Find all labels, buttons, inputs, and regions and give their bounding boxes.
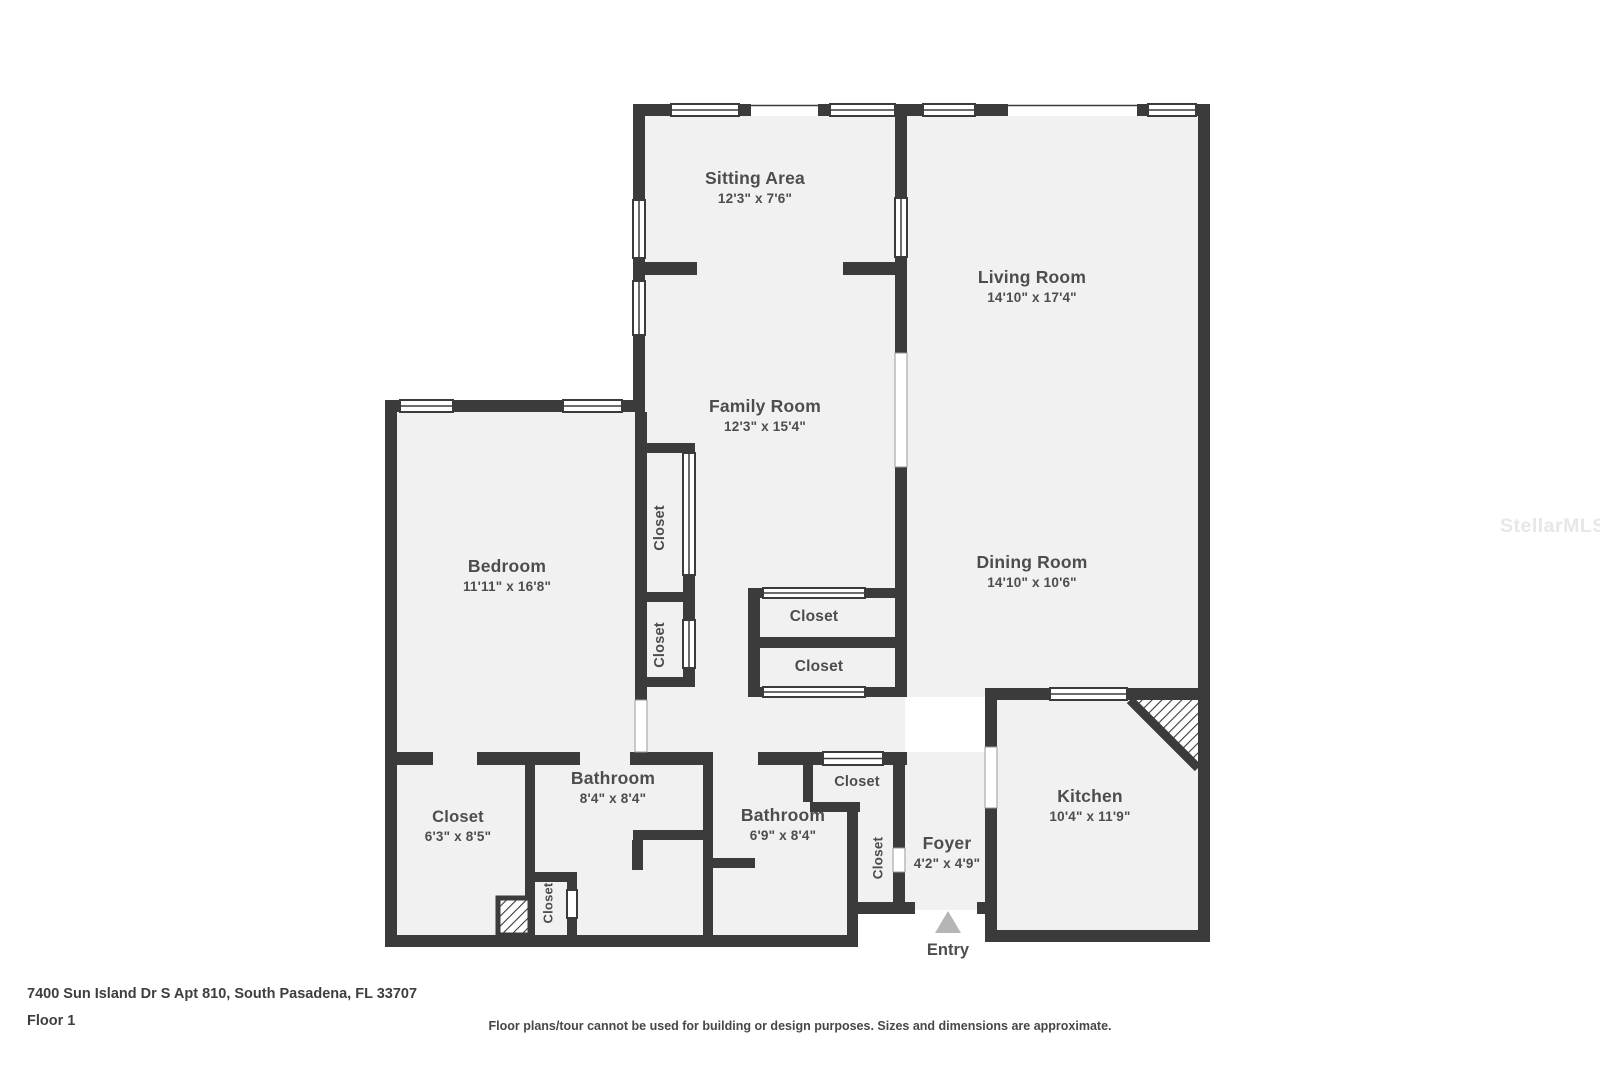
room-label-family-room: Family Room 12'3" x 15'4" xyxy=(709,396,821,434)
stellar-mls-watermark: StellarMLS xyxy=(1500,515,1600,538)
room-dims: 4'2" x 4'9" xyxy=(914,856,980,871)
wall xyxy=(847,902,858,947)
wall xyxy=(758,752,823,765)
room-dims: 11'11" x 16'8" xyxy=(463,579,551,594)
room-dims: 6'9" x 8'4" xyxy=(741,828,825,843)
wall xyxy=(985,930,1210,942)
wall xyxy=(748,588,763,598)
wall xyxy=(683,443,695,453)
room-name: Bathroom xyxy=(741,805,825,826)
room-label-bedroom: Bedroom 11'11" x 16'8" xyxy=(463,556,551,594)
entry-label: Entry xyxy=(927,941,969,960)
room-label-kitchen: Kitchen 10'4" x 11'9" xyxy=(1049,786,1130,824)
floor-number-label: Floor 1 xyxy=(27,1013,75,1029)
property-address: 7400 Sun Island Dr S Apt 810, South Pasa… xyxy=(27,986,417,1002)
wall xyxy=(567,882,577,890)
closet-label: Closet xyxy=(541,883,556,924)
wall xyxy=(748,687,763,697)
wall xyxy=(528,872,577,882)
room-label-bathroom-2: Bathroom 6'9" x 8'4" xyxy=(741,805,825,843)
room-name: Dining Room xyxy=(976,552,1087,573)
closet-label: Closet xyxy=(790,608,839,626)
room-dims: 10'4" x 11'9" xyxy=(1049,809,1130,824)
door-opening xyxy=(895,353,907,467)
room-dims: 6'3" x 8'5" xyxy=(425,829,491,844)
room-label-sitting-area: Sitting Area 12'3" x 7'6" xyxy=(705,168,805,206)
room-name: Family Room xyxy=(709,396,821,417)
closet-label: Closet xyxy=(795,658,844,676)
wall xyxy=(803,765,813,802)
room-dims: 12'3" x 7'6" xyxy=(705,191,805,206)
room-name: Living Room xyxy=(978,267,1086,288)
room-label-bathroom-1: Bathroom 8'4" x 8'4" xyxy=(571,768,655,806)
closet-label: Closet xyxy=(834,774,880,790)
room-dims: 12'3" x 15'4" xyxy=(709,419,821,434)
wall xyxy=(895,257,907,353)
room-name: Bedroom xyxy=(463,556,551,577)
wall xyxy=(630,752,713,765)
wall xyxy=(632,840,643,870)
wall xyxy=(985,688,1050,700)
disclaimer-text: Floor plans/tour cannot be used for buil… xyxy=(488,1019,1111,1033)
wall xyxy=(893,872,905,902)
wall xyxy=(895,467,907,697)
window xyxy=(567,890,577,918)
entry-arrow-icon xyxy=(935,911,961,933)
floor-plan-drawing xyxy=(0,0,1600,1067)
wall xyxy=(985,808,997,942)
wall xyxy=(1127,688,1210,700)
wall xyxy=(895,104,907,198)
room-dims: 14'10" x 17'4" xyxy=(978,290,1086,305)
room-label-hall-closet: Closet 6'3" x 8'5" xyxy=(425,808,491,844)
room-name: Sitting Area xyxy=(705,168,805,189)
room-name: Foyer xyxy=(914,833,980,854)
room-dims: 8'4" x 8'4" xyxy=(571,791,655,806)
door-opening xyxy=(985,747,997,808)
wall xyxy=(883,752,907,765)
room-label-foyer: Foyer 4'2" x 4'9" xyxy=(914,833,980,871)
wall xyxy=(385,752,433,765)
wall xyxy=(683,575,695,620)
wall xyxy=(633,262,697,275)
wall xyxy=(633,830,705,840)
wall xyxy=(683,668,695,687)
door-opening xyxy=(635,700,647,752)
wall xyxy=(893,752,905,848)
room-label-living-room: Living Room 14'10" x 17'4" xyxy=(978,267,1086,305)
wall xyxy=(865,588,907,598)
hatched-chase-box xyxy=(498,898,530,935)
wall xyxy=(635,412,647,700)
floor-plan-page: Sitting Area 12'3" x 7'6" Living Room 14… xyxy=(0,0,1600,1067)
wall xyxy=(865,687,907,697)
room-name: Kitchen xyxy=(1049,786,1130,807)
floor-area xyxy=(645,690,905,760)
room-name: Closet xyxy=(425,808,491,827)
wall xyxy=(385,935,858,947)
room-dims: 14'10" x 10'6" xyxy=(976,575,1087,590)
closet-label: Closet xyxy=(652,505,668,551)
wall xyxy=(477,752,580,765)
room-label-dining-room: Dining Room 14'10" x 10'6" xyxy=(976,552,1087,590)
wall xyxy=(1198,104,1210,942)
closet-label: Closet xyxy=(871,837,886,879)
wall xyxy=(713,858,755,868)
wall xyxy=(385,400,397,947)
closet-label: Closet xyxy=(652,622,668,668)
room-name: Bathroom xyxy=(571,768,655,789)
wall xyxy=(703,752,713,935)
door-opening xyxy=(893,848,905,872)
wall xyxy=(567,918,577,935)
wall xyxy=(847,810,858,902)
wall xyxy=(748,637,907,648)
